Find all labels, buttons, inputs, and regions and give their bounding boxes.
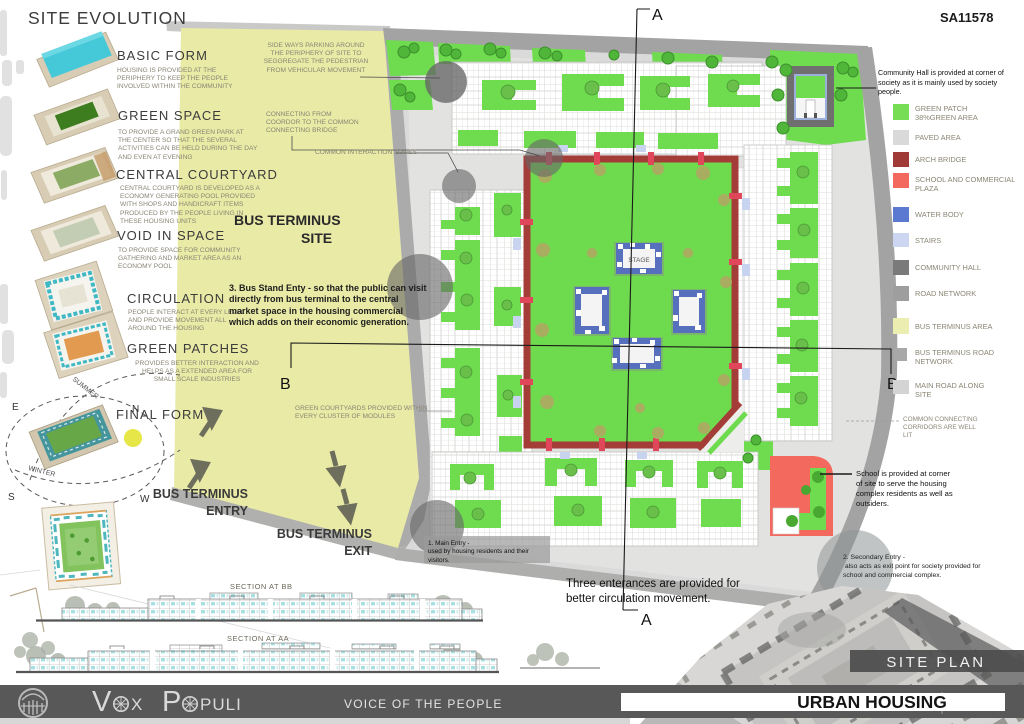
- svg-text:PULI: PULI: [200, 695, 242, 714]
- svg-text:P: P: [162, 686, 181, 718]
- svg-text:A: A: [652, 7, 663, 24]
- svg-text:URBAN HOUSING: URBAN HOUSING: [797, 692, 947, 712]
- svg-text:S: S: [8, 492, 15, 503]
- svg-text:V: V: [92, 686, 112, 718]
- svg-text:E: E: [12, 402, 19, 413]
- svg-text:B: B: [280, 376, 291, 393]
- svg-text:VOICE OF THE PEOPLE: VOICE OF THE PEOPLE: [344, 697, 503, 711]
- svg-text:X: X: [131, 695, 142, 714]
- svg-text:SITE PLAN: SITE PLAN: [886, 654, 985, 671]
- svg-text:A: A: [641, 612, 652, 629]
